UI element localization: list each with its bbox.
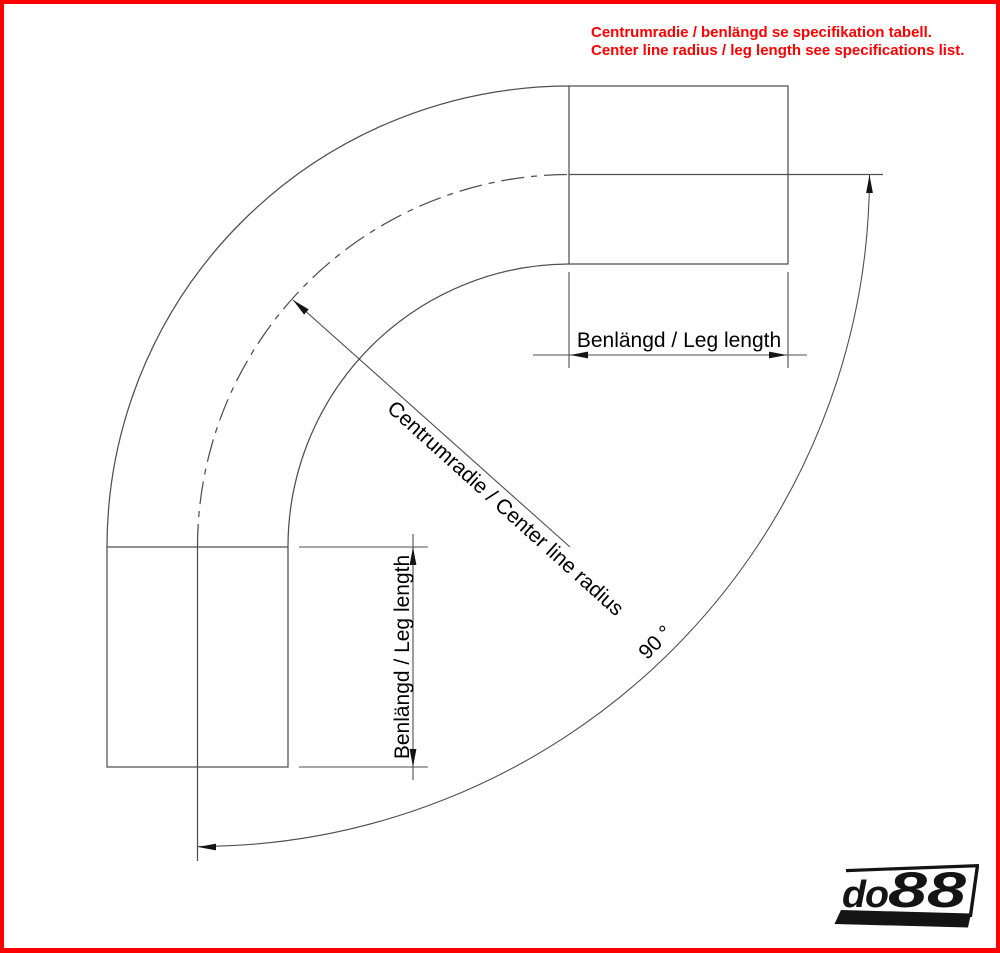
bend-outer-arc: [107, 86, 569, 547]
pipe-bend-drawing: [0, 0, 1000, 953]
notice-line-english: Center line radius / leg length see spec…: [591, 42, 964, 60]
angle-arc-arrow-top: [866, 175, 873, 193]
bend-centerline-arc: [198, 175, 571, 548]
logo-text-do: do: [842, 874, 888, 916]
notice-line-swedish: Centrumradie / benlängd se specifikation…: [591, 24, 964, 42]
angle-dim-arc: [198, 175, 870, 847]
radius-leader-line: [293, 300, 570, 547]
left-leg-length-label: Benlängd / Leg length: [391, 555, 415, 759]
bend-inner-arc: [288, 264, 569, 547]
do88-logo: do 88: [822, 854, 990, 934]
specification-notice: Centrumradie / benlängd se specifikation…: [591, 24, 964, 59]
logo-text-88: 88: [888, 862, 966, 918]
top-leg-length-label: Benlängd / Leg length: [577, 329, 781, 353]
angle-arc-arrow-bottom: [198, 844, 216, 851]
drawing-canvas: Centrumradie / benlängd se specifikation…: [0, 0, 1000, 953]
logo-right-bar: [969, 867, 979, 917]
